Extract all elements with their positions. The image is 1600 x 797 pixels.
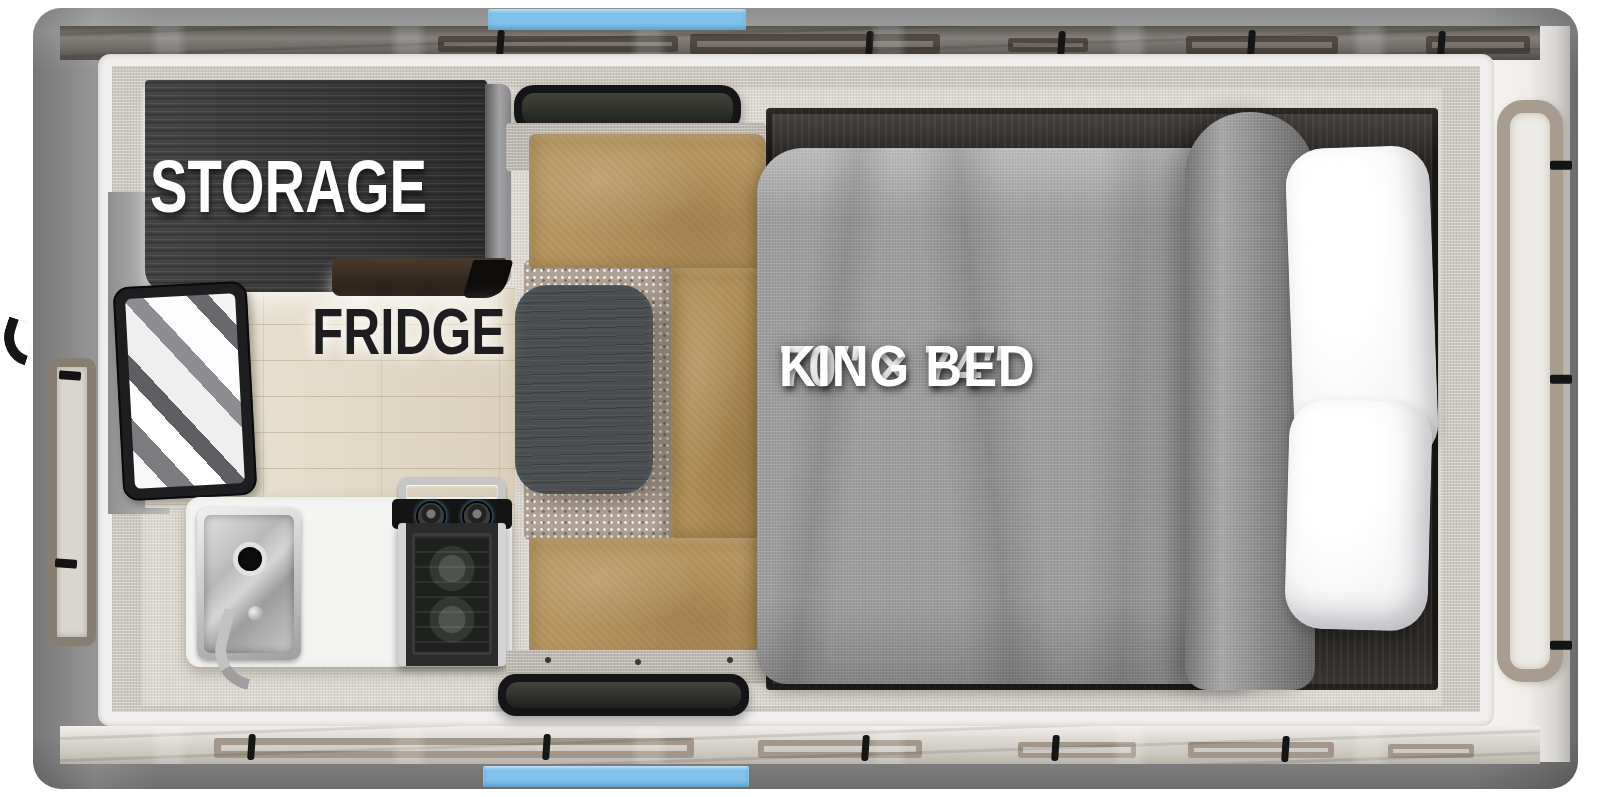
storage-label: STORAGE [150,150,427,224]
entry-door-glass [112,281,257,502]
canvas-window-outline [758,740,922,758]
faucet-base [248,606,263,621]
two-burner-stove [392,477,512,667]
canvas-window-outline [690,34,940,54]
canvas-window-outline [214,738,694,758]
bed-comforter [757,148,1257,684]
side-window [48,358,96,646]
window-clip-icon [55,558,78,569]
zipper-pull-icon [1281,736,1290,762]
window-clip-icon [1550,161,1572,170]
zipper-pull-icon [861,735,870,761]
canvas-window-outline [1426,36,1530,54]
stove-glass-top [412,533,492,655]
dinette-cushion-bottom [529,538,763,660]
dinette-cushion-right [671,268,766,538]
pillow [1284,398,1433,632]
accent-bar-top [488,9,746,30]
accent-bar-bottom [483,766,749,787]
dinette-table [515,285,653,494]
dinette-cushion-top [529,134,766,268]
zipper-pull-icon [542,734,551,760]
canvas-window-outline [1388,744,1474,758]
canvas-window-outline [1008,38,1088,52]
front-window [1497,100,1563,682]
zipper-pull-icon [1247,30,1256,56]
zipper-pull-icon [496,30,505,56]
canvas-window-outline [1018,742,1136,758]
window-clip-icon [59,370,82,381]
fridge-label: FRIDGE [312,300,505,364]
window-clip-icon [1550,375,1572,384]
sink-drain-icon [238,547,262,571]
bed-type-label: KING BED [779,338,1036,393]
canvas-window-outline [1188,742,1334,758]
canvas-window-outline [438,36,678,52]
canvas-window-outline [1186,36,1338,54]
zipper-pull-icon [1051,735,1060,761]
door-glass-reflection [125,293,245,488]
zipper-pull-icon [247,734,256,760]
floorplan: STORAGE FRIDGE 70″ × 74″ KING BED [0,0,1600,797]
popup-canvas-bottom [60,726,1540,764]
window-clip-icon [1550,641,1572,650]
overhead-tray-bottom [498,674,749,716]
